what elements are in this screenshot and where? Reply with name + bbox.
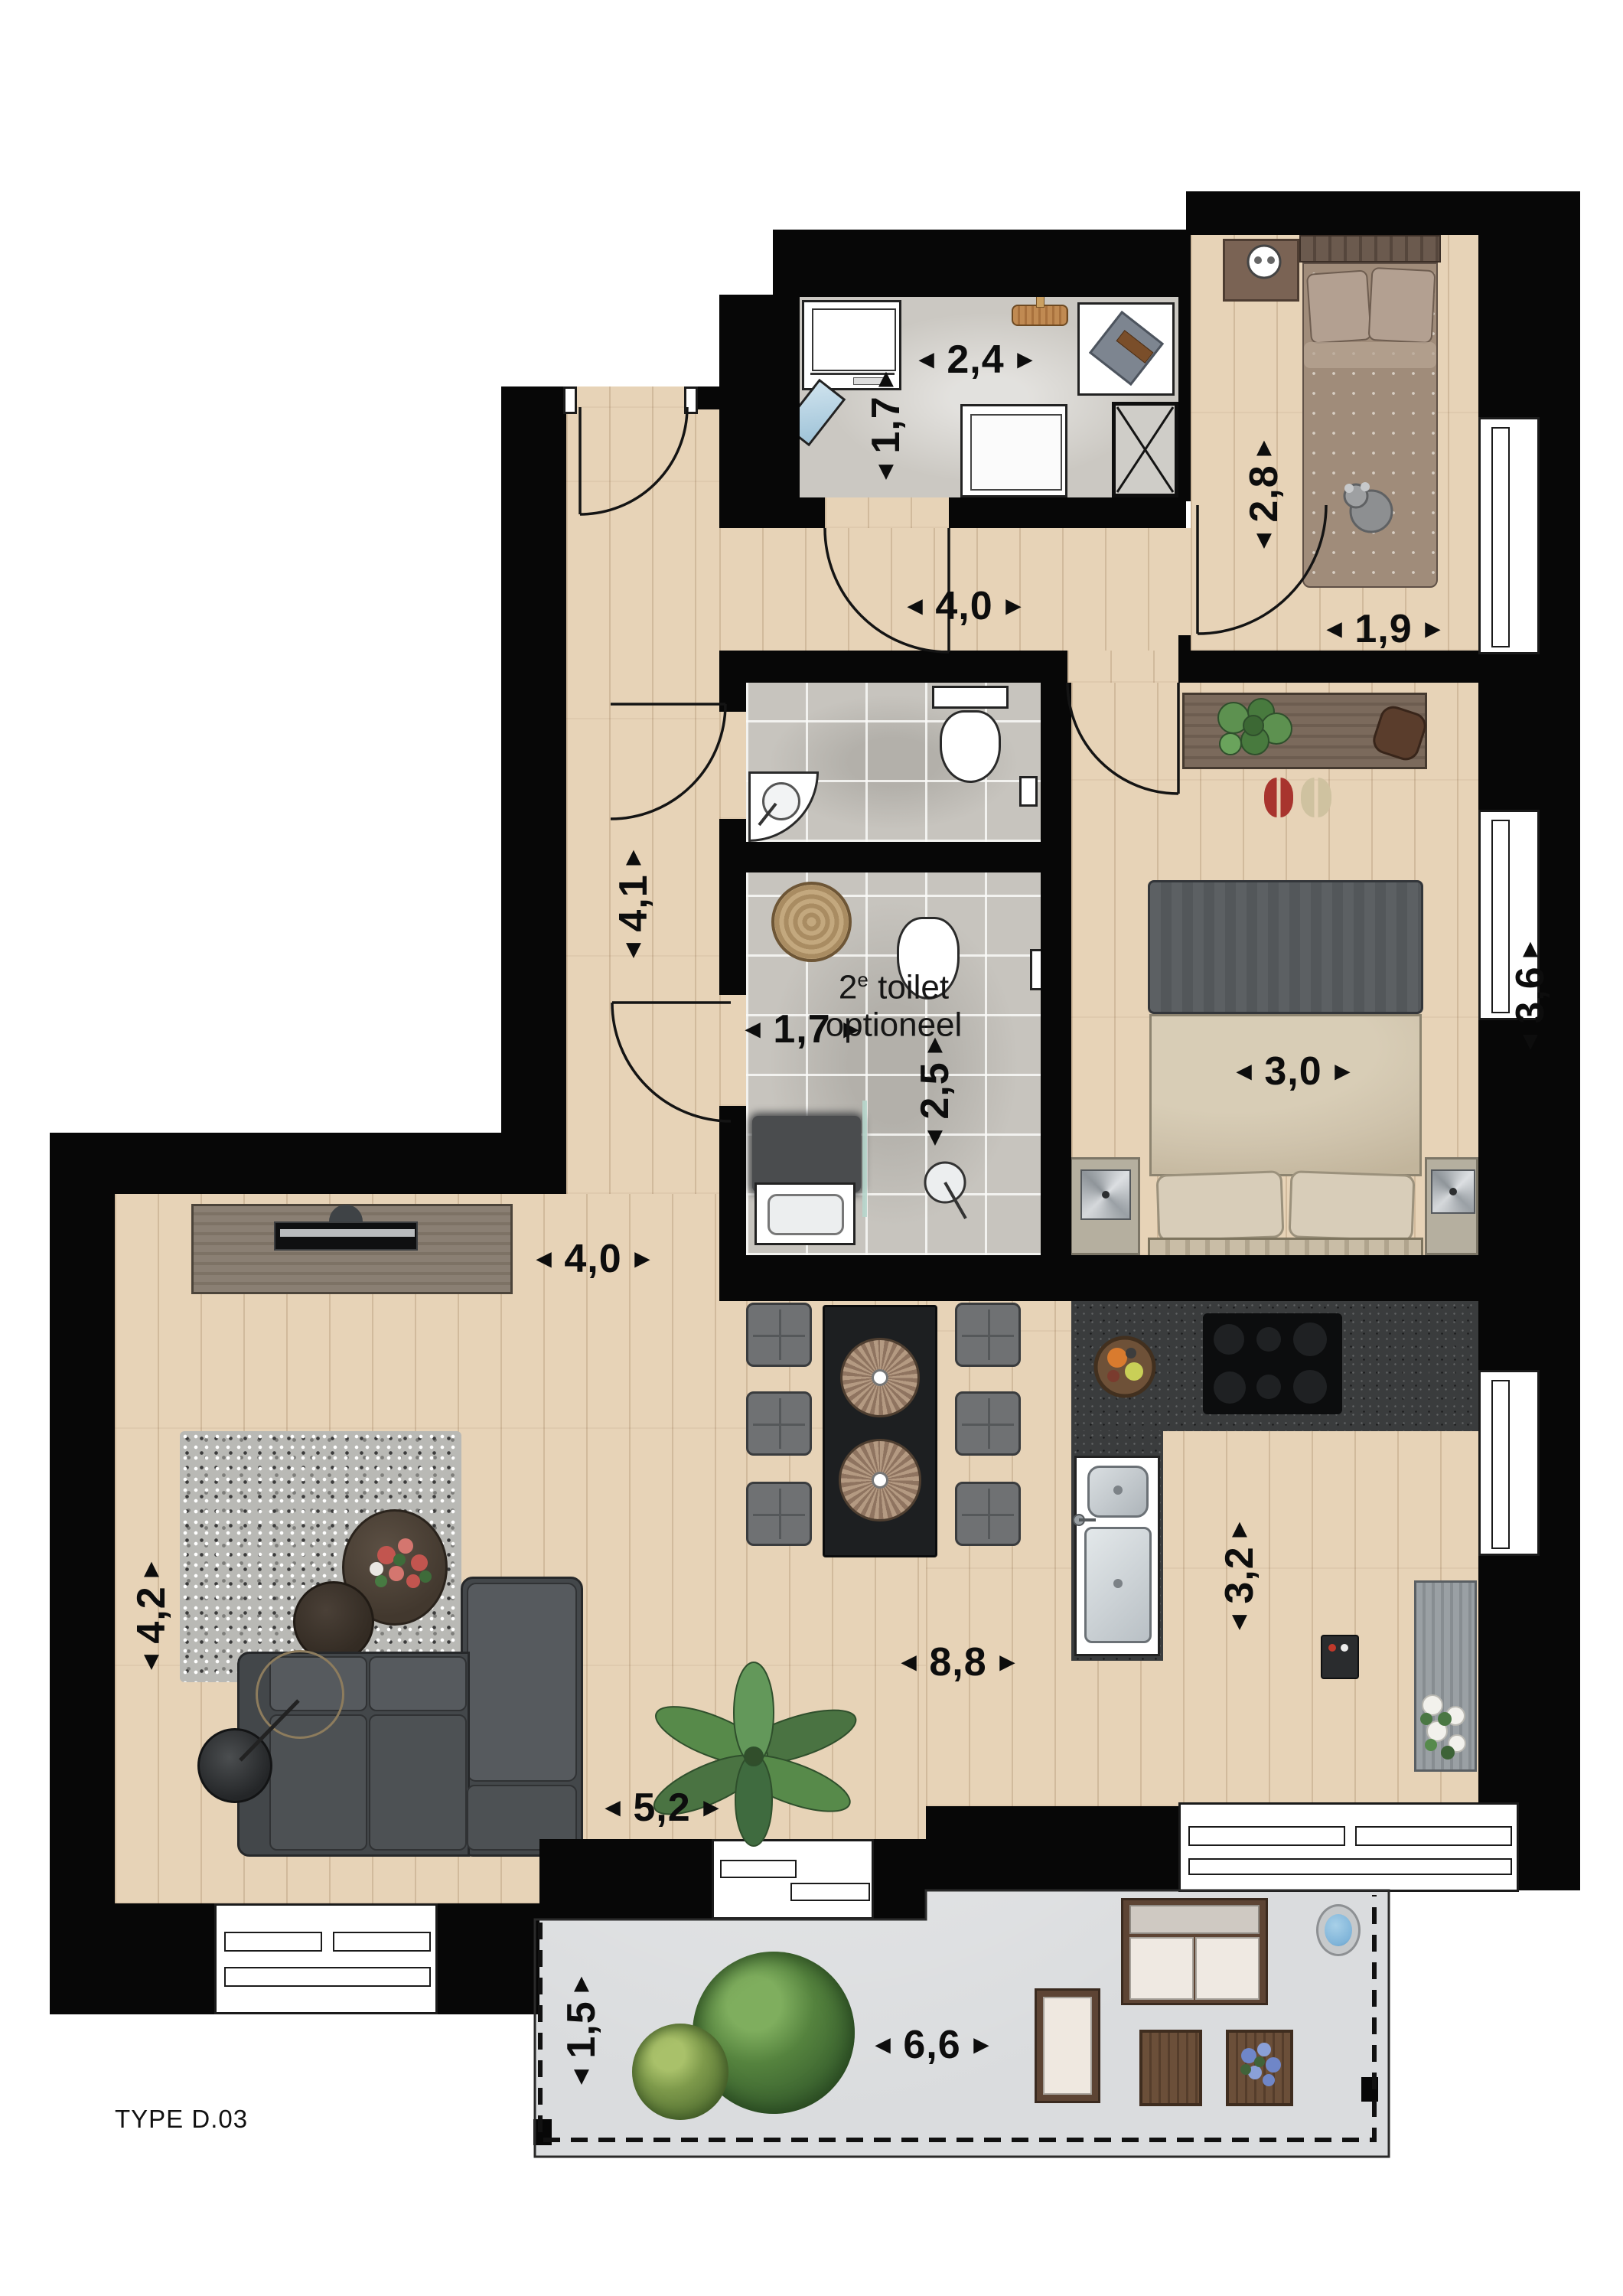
annotation-optional-toilet: 2e toilet optioneel — [826, 969, 963, 1045]
dim-utility-depth: ▲1,7▼ — [863, 365, 909, 484]
door-swing-bedroom-1 — [1067, 683, 1178, 794]
teddy-bear — [1344, 482, 1392, 532]
dim-living-top-width: ◄4,0► — [531, 1236, 656, 1282]
balcony-railing — [540, 1895, 1374, 2140]
duct-x — [1117, 407, 1173, 492]
bouquet-coffee-table — [370, 1538, 432, 1588]
door-swing-bathroom — [612, 1003, 731, 1121]
dim-bedroom1-depth: ▲3,6▼ — [1507, 935, 1553, 1054]
dim-bedroom2-depth: ▲2,8▼ — [1241, 434, 1287, 553]
plan-type-label: TYPE D.03 — [115, 2105, 248, 2134]
wc-tap — [759, 804, 776, 825]
flowers-balcony — [1240, 2043, 1281, 2086]
dim-bedroom2-width: ◄1,9► — [1322, 606, 1446, 652]
sink-faucet — [1074, 1515, 1096, 1525]
floor-plan: ◄2,4► ▲1,7▼ ◄4,0► ▲2,8▼ ◄1,9► ▲4,1▼ ◄1,7… — [0, 0, 1623, 2296]
plan-linework — [0, 0, 1623, 2296]
dim-balcony-width: ◄6,6► — [870, 2022, 995, 2068]
annotation-line-1: 2e toilet — [826, 969, 963, 1006]
tv-mount — [329, 1205, 363, 1221]
door-swing-entry — [580, 407, 687, 514]
dim-utility-width: ◄2,4► — [914, 337, 1038, 383]
bouquet-side-table — [1420, 1695, 1465, 1760]
plant-sideboard — [1218, 699, 1292, 755]
dim-kitchen-depth: ▲3,2▼ — [1217, 1515, 1263, 1634]
dim-hall-depth: ▲4,1▼ — [611, 843, 657, 962]
dim-balcony-depth: ▲1,5▼ — [559, 1970, 605, 2089]
alarm-clock — [1248, 246, 1280, 278]
dim-living-bottom-width: ◄5,2► — [600, 1785, 725, 1831]
dim-living-kitchen-width: ◄8,8► — [896, 1639, 1021, 1685]
floor-lamp-stem — [240, 1701, 298, 1760]
annotation-line-2: optioneel — [826, 1006, 963, 1044]
dim-bedroom1-width: ◄3,0► — [1231, 1049, 1356, 1094]
dim-hall-width: ◄4,0► — [902, 583, 1027, 629]
door-swing-hall — [611, 704, 725, 819]
dim-living-depth: ▲4,2▼ — [129, 1555, 174, 1674]
dim-bathroom-depth: ▲2,5▼ — [912, 1031, 958, 1150]
fruit-bowl — [1096, 1338, 1154, 1396]
